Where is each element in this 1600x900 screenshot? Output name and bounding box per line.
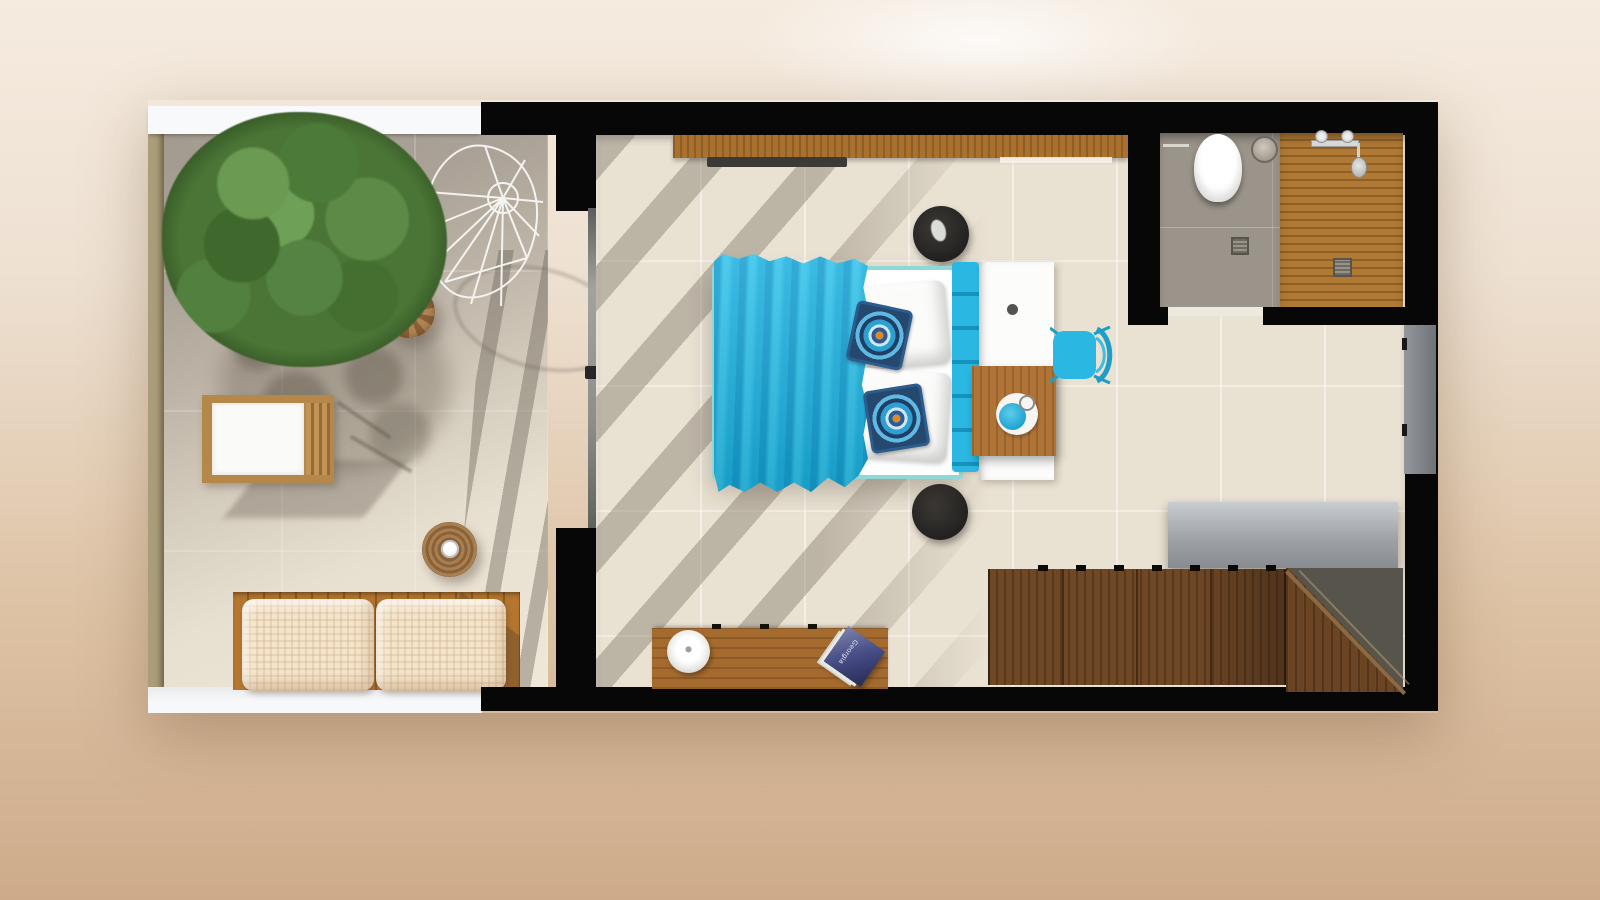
shower-valve: [1341, 130, 1354, 143]
sun-lounger-slats: [306, 403, 330, 475]
bench-pillow-right: [376, 599, 506, 691]
grey-counter: [1168, 502, 1398, 568]
wall-shelf: [673, 135, 1128, 158]
shower-valve: [1315, 130, 1328, 143]
tray-item: [1019, 395, 1035, 411]
top-wall: [481, 102, 1438, 135]
wardrobe-hinges: [1038, 565, 1278, 571]
tv: [707, 157, 847, 167]
hand-shower-icon: [1351, 157, 1367, 178]
turquoise-throw: [714, 254, 868, 492]
shelf-highlight: [1000, 157, 1112, 163]
round-lamp: [667, 630, 710, 673]
mandala-cushion: [862, 383, 930, 454]
bathroom-bottom-wall: [1128, 307, 1168, 325]
flush-plate: [1251, 136, 1278, 163]
bathroom-door-threshold: [1168, 307, 1263, 316]
panel-notch: [1402, 338, 1407, 350]
floor-drain: [1231, 237, 1249, 255]
shower-drain: [1333, 258, 1352, 277]
magazine-title: Georgia: [837, 638, 859, 665]
towel-hook: [1163, 144, 1189, 147]
bathroom-left-wall: [1128, 135, 1160, 325]
round-stool-bottom: [912, 484, 968, 540]
tree: [162, 112, 447, 367]
shower-deck: [1280, 133, 1403, 307]
panel-notch: [1402, 424, 1407, 436]
grey-wall-panel: [1404, 314, 1436, 474]
wardrobe: [988, 569, 1286, 685]
terrace-left-wall: [148, 130, 164, 690]
toilet: [1194, 134, 1242, 202]
sun-lounger-canvas: [212, 403, 304, 475]
turquoise-chair: [1050, 326, 1116, 384]
bench-pillow-left: [242, 599, 374, 691]
hand-shower-stem: [1357, 143, 1360, 158]
media-bench-hinges: [712, 624, 824, 629]
stage: { "scene": { "type": "3d-floor-plan-top-…: [0, 0, 1600, 900]
cup: [441, 540, 459, 558]
bathroom-bottom-wall: [1263, 307, 1438, 325]
console-knob: [1007, 304, 1018, 315]
